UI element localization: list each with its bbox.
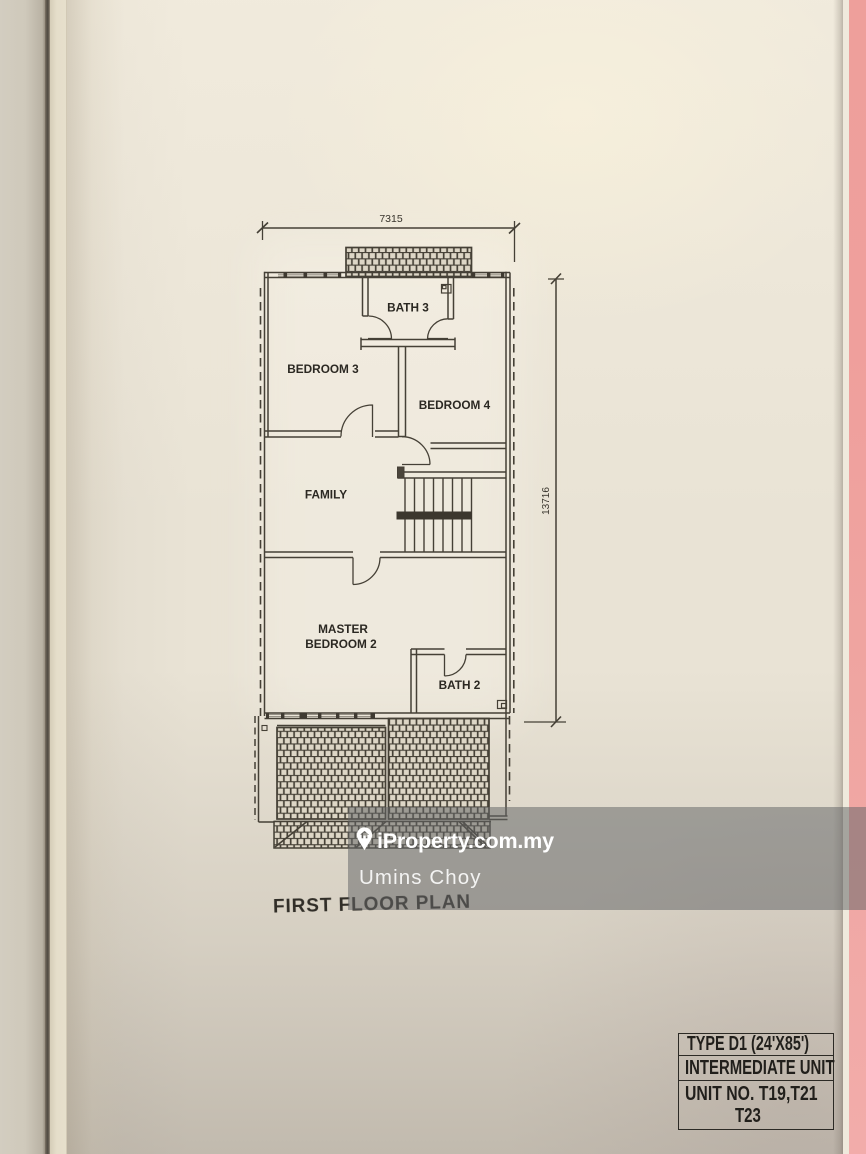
svg-text:13716: 13716: [541, 487, 552, 515]
svg-text:BATH 3: BATH 3: [387, 301, 429, 315]
svg-text:FAMILY: FAMILY: [305, 488, 347, 502]
svg-text:7315: 7315: [379, 213, 403, 225]
svg-text:BEDROOM 3: BEDROOM 3: [287, 362, 359, 376]
svg-text:BEDROOM 4: BEDROOM 4: [419, 398, 491, 412]
svg-text:BATH 2: BATH 2: [439, 678, 481, 692]
svg-text:BEDROOM 2: BEDROOM 2: [305, 637, 377, 651]
svg-text:MASTER: MASTER: [318, 622, 368, 636]
